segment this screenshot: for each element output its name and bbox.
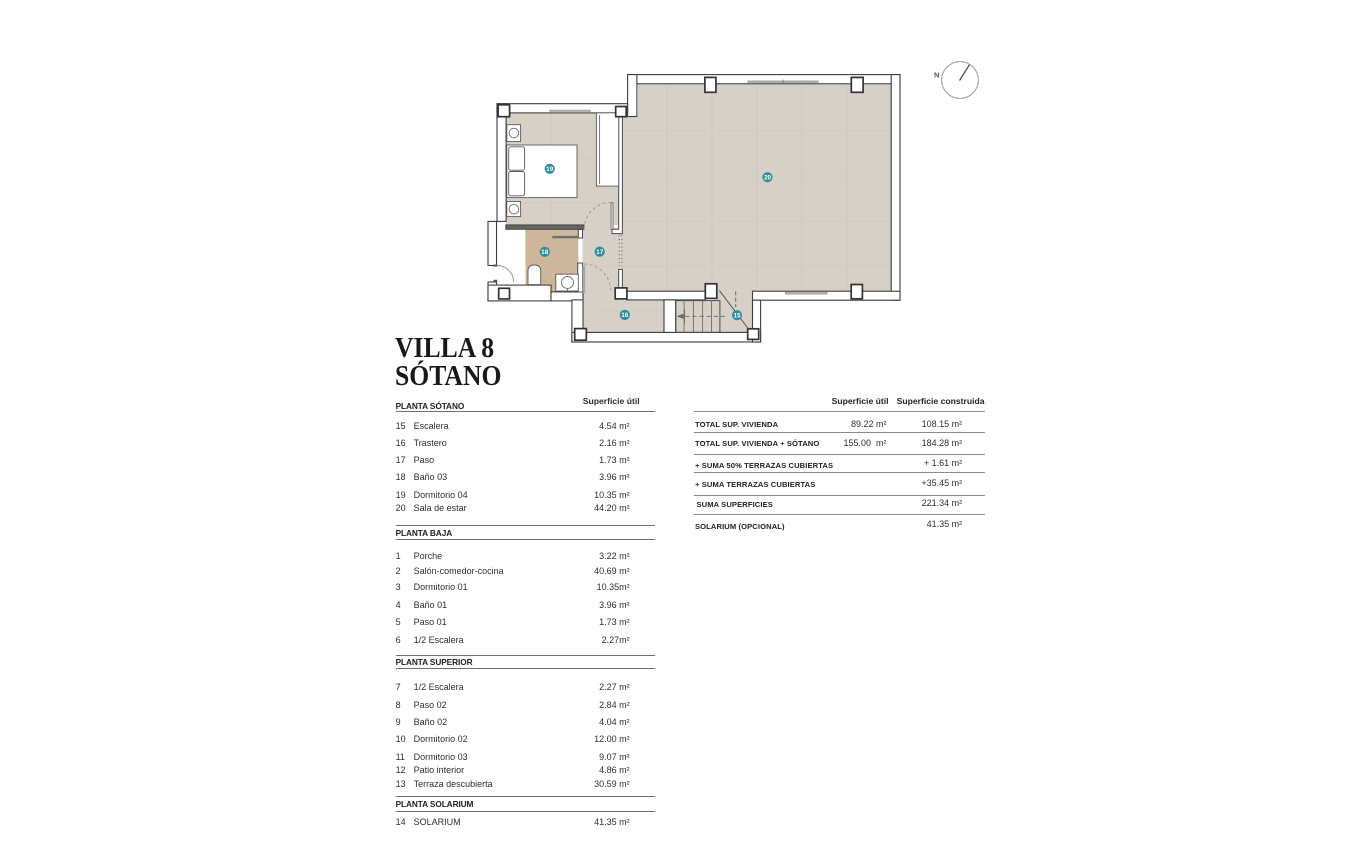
svg-text:19: 19 [546,166,554,173]
svg-text:18: 18 [541,249,549,256]
svg-text:20: 20 [764,175,772,182]
svg-text:17: 17 [596,249,604,256]
svg-text:N: N [934,71,939,80]
svg-text:16: 16 [621,312,629,319]
svg-text:15: 15 [733,313,741,320]
